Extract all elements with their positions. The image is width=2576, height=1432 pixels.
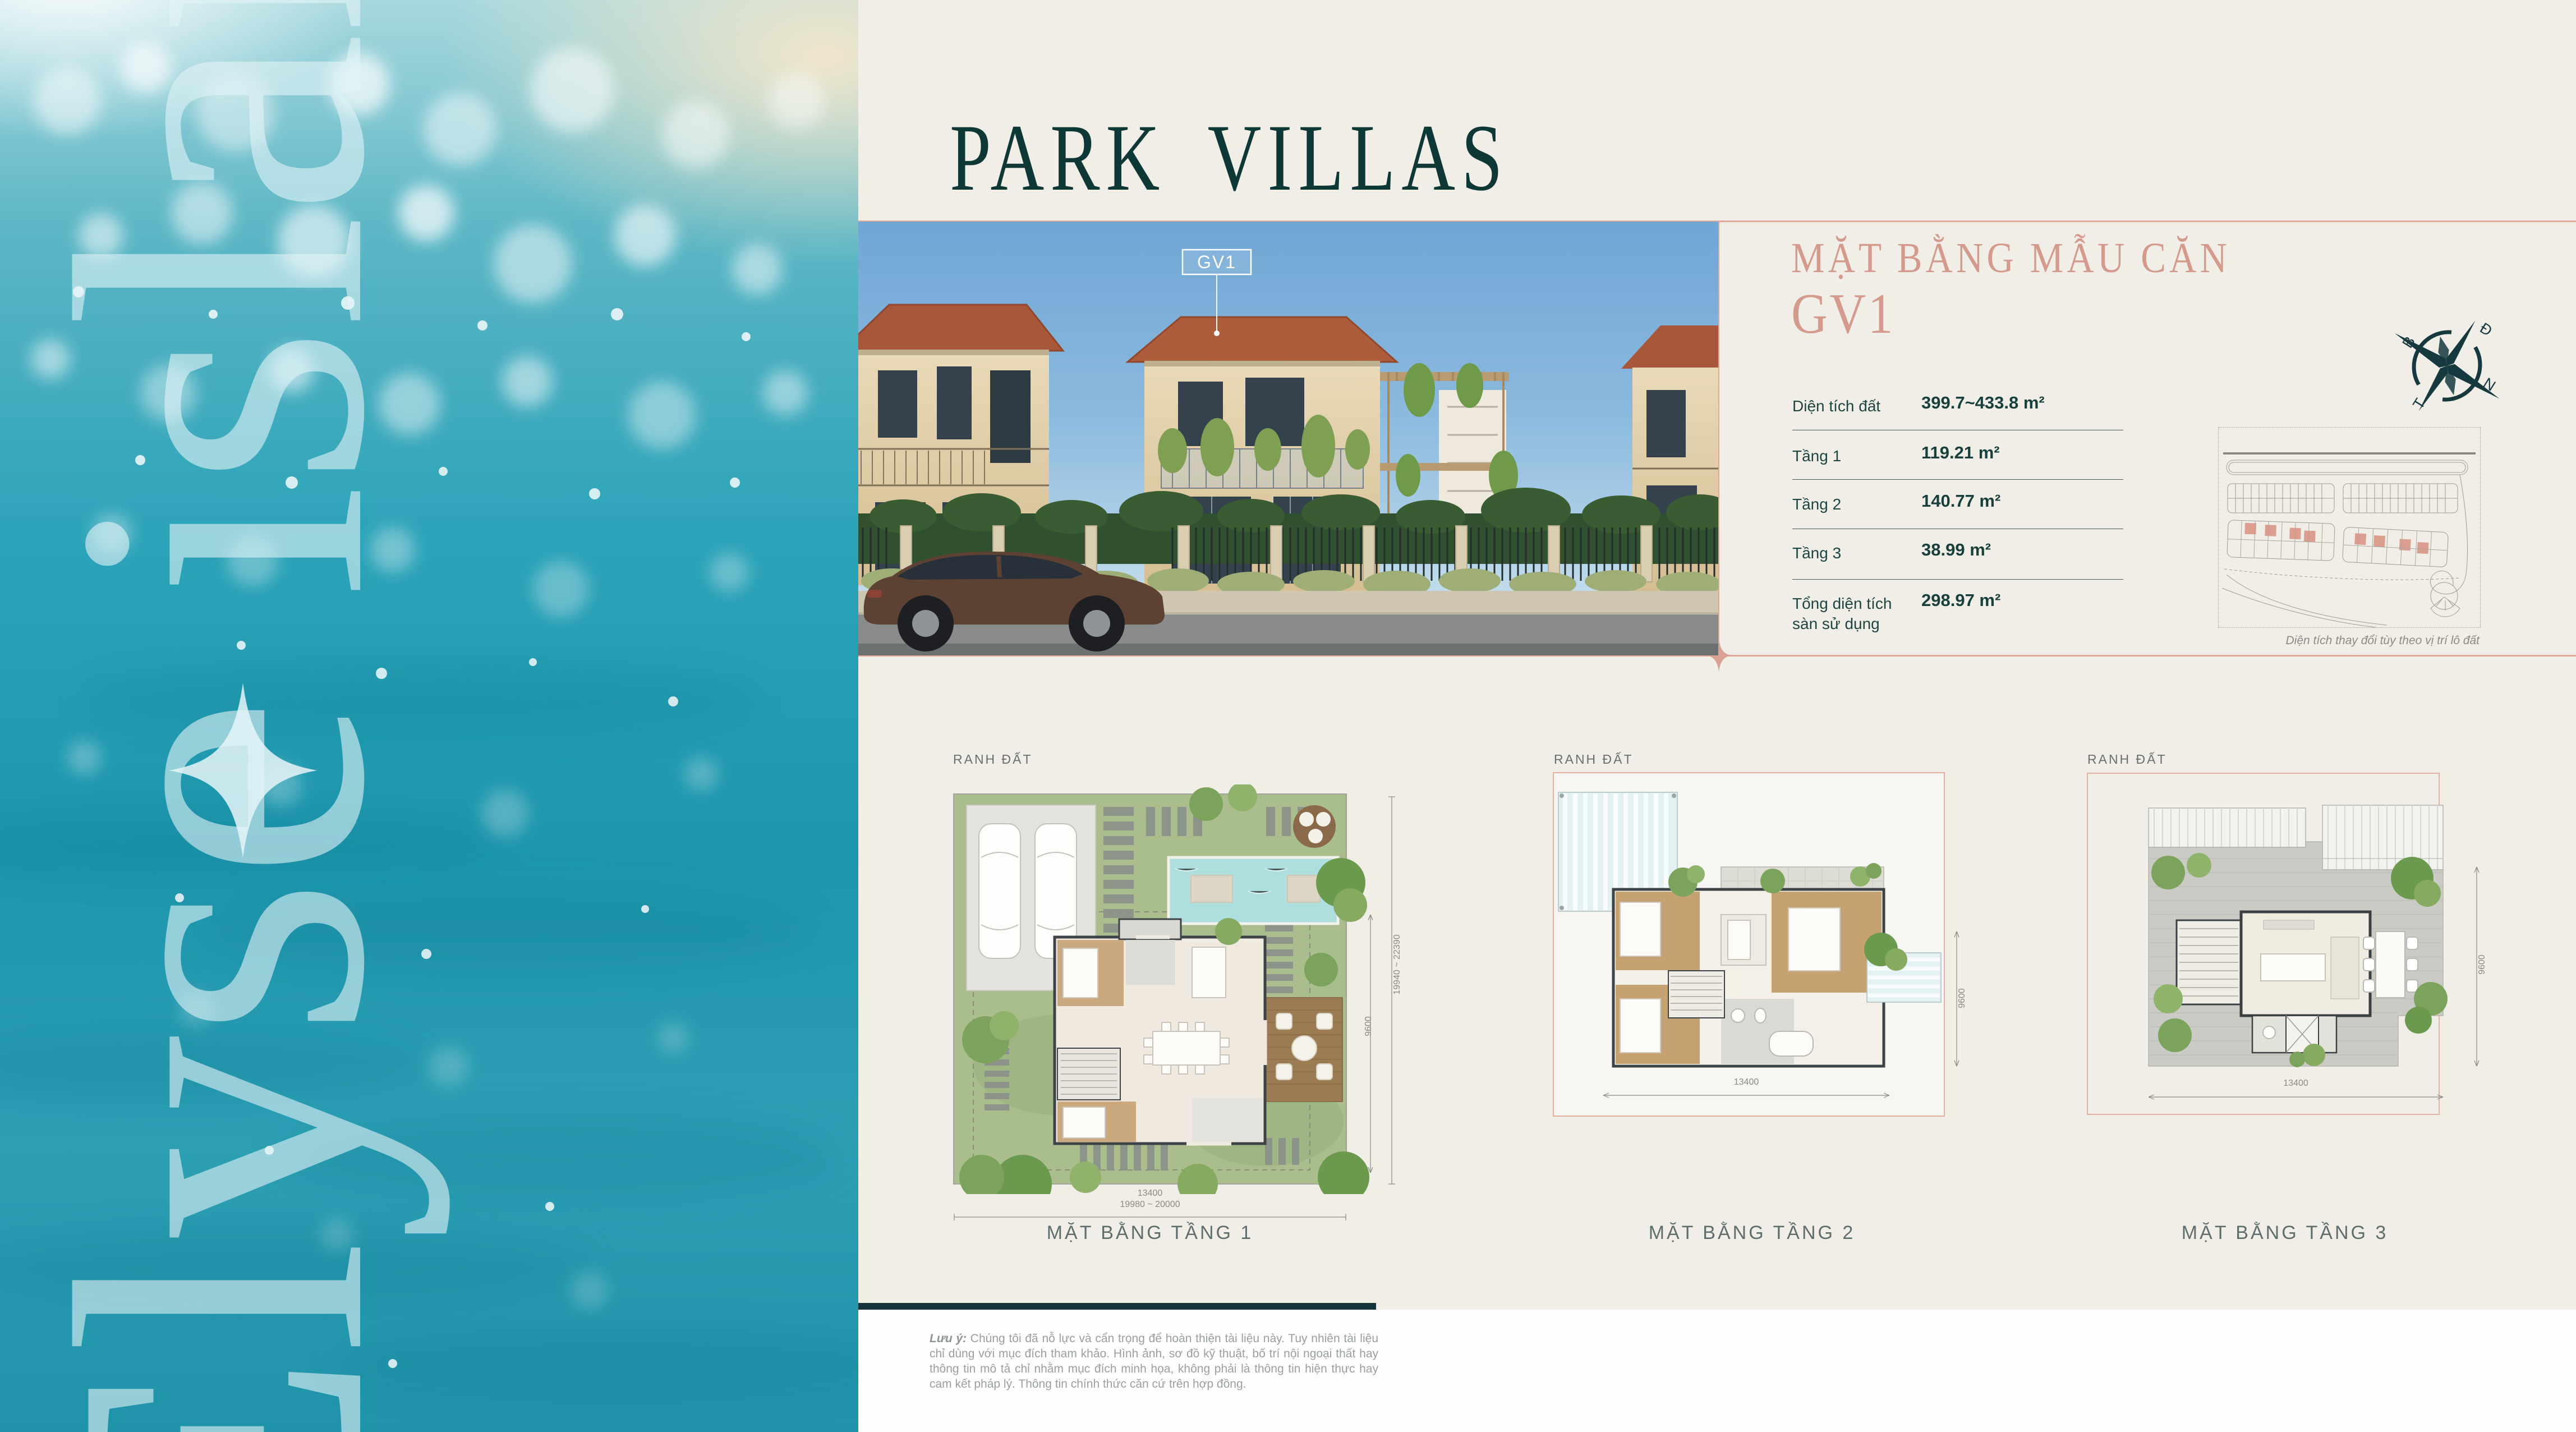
spec-unit-code: GV1 xyxy=(1791,285,1895,343)
dim-height-inner: 9600 xyxy=(1957,976,1967,1021)
floorplan-3-caption: MẶT BẰNG TẦNG 3 xyxy=(2086,1222,2484,1244)
site-map-caption: Diện tích thay đổi tùy theo vị trí lô đấ… xyxy=(2218,634,2480,648)
spec-row-value: 140.77 m² xyxy=(1921,491,2123,511)
dim-height-inner: 9600 xyxy=(2477,942,2487,987)
spec-divider xyxy=(1792,479,2123,480)
villa-photo: GV1 xyxy=(858,222,1718,655)
site-location-map xyxy=(2218,427,2481,628)
spec-row-value: 119.21 m² xyxy=(1921,443,2123,463)
boundary-label: RANH ĐẤT xyxy=(953,752,1033,767)
dim-width-inner: 13400 xyxy=(951,1188,1349,1199)
dim-width-outer: 19980 ~ 20000 xyxy=(951,1200,1349,1210)
compass-east-label: Đ xyxy=(2477,319,2495,339)
spec-row-label: Diện tích đất xyxy=(1792,396,1919,416)
note-accent-bar xyxy=(858,1303,1376,1310)
compass-icon: B Đ N T xyxy=(2391,310,2503,422)
spec-row-value: 38.99 m² xyxy=(1921,540,2123,560)
brochure-page: Elyse island PARK VILLAS xyxy=(0,0,2576,1432)
page-title: PARK VILLAS xyxy=(950,110,1509,205)
spec-row-label: Tầng 2 xyxy=(1792,494,1919,515)
spec-row-value: 399.7~433.8 m² xyxy=(1921,393,2123,413)
spec-row-value: 298.97 m² xyxy=(1921,590,2123,611)
legal-note-text: Chúng tôi đã nỗ lực và cẩn trọng để hoàn… xyxy=(930,1332,1378,1390)
dim-width-inner: 13400 xyxy=(1603,1077,1889,1087)
floorplan-3: RANH ĐẤT xyxy=(2084,752,2516,1257)
sparkle-icon xyxy=(150,678,335,863)
spec-row-label: Tầng 1 xyxy=(1792,446,1919,466)
dim-width-inner: 13400 xyxy=(2149,1078,2443,1089)
spec-row-label: Tổng diện tích sàn sử dụng xyxy=(1792,594,1919,634)
legal-note: Lưu ý: Chúng tôi đã nỗ lực và cẩn trọng … xyxy=(930,1331,1378,1392)
compass-south-label: N xyxy=(2480,374,2498,394)
floorplan-2: RANH ĐẤT xyxy=(1553,752,1974,1257)
dim-height-inner: 9600 xyxy=(1364,1001,1374,1052)
unit-callout-label: GV1 xyxy=(1197,252,1236,272)
legal-note-label: Lưu ý: xyxy=(930,1332,967,1345)
dim-line-outer xyxy=(951,1213,1349,1221)
site-map-drawing xyxy=(2219,428,2480,627)
spec-heading: MẶT BẰNG MẪU CĂN xyxy=(1791,236,2230,281)
ocean-photo-panel: Elyse island xyxy=(0,0,858,1432)
spec-divider xyxy=(1792,579,2123,580)
floorplan-1: RANH ĐẤT xyxy=(951,752,1405,1257)
spec-divider xyxy=(1792,430,2123,430)
dim-height-outer: 19940 ~ 22390 xyxy=(1392,925,1402,1004)
spec-row-label: Tầng 3 xyxy=(1792,543,1919,563)
floorplan-1-caption: MẶT BẰNG TẦNG 1 xyxy=(951,1222,1349,1244)
spec-divider xyxy=(1792,529,2123,529)
floorplan-1-drawing xyxy=(951,784,1405,1194)
floorplan-2-caption: MẶT BẰNG TẦNG 2 xyxy=(1553,1222,1951,1244)
